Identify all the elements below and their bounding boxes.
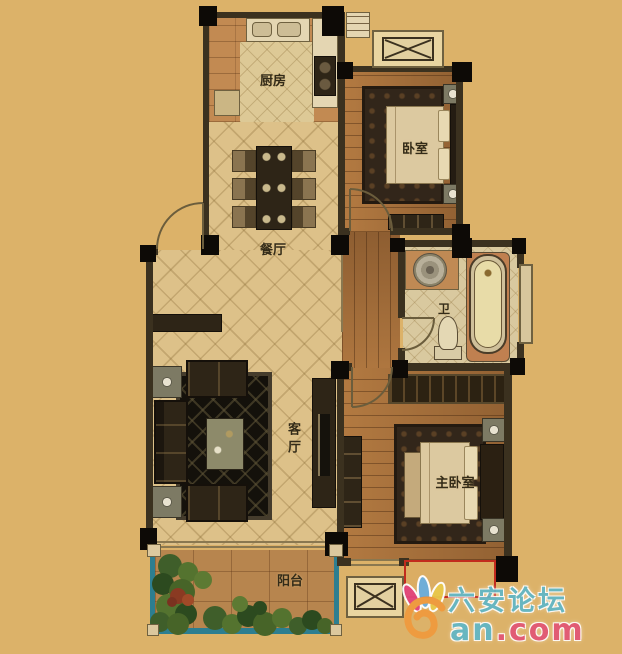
kitchen-bedroom-wall (338, 12, 345, 235)
dining-chair (292, 178, 316, 200)
kitchen-shelf-unit (346, 12, 370, 38)
master-nightstand-top (482, 418, 506, 442)
post-kitchen-top-left (199, 6, 217, 26)
armchair-top (186, 360, 248, 398)
post-kitchen-top-right (322, 6, 344, 36)
balcony-door-track-bottom (150, 546, 340, 548)
toilet-bowl (438, 316, 458, 350)
post-bathroom-top-mid (452, 238, 472, 258)
master-dresser (342, 436, 362, 528)
kitchen-cabinet (214, 90, 240, 116)
bathtub-basin (474, 260, 502, 348)
master-bottom-wall-left (337, 558, 351, 566)
post-bathroom-bottom-left (392, 360, 408, 378)
post-dining-left (201, 235, 219, 255)
master-window (354, 583, 396, 610)
console-table (150, 314, 222, 332)
master-window-sill (351, 559, 399, 566)
dining-table (256, 146, 292, 230)
hallway-floor (342, 232, 400, 368)
living-left-wall (146, 250, 153, 545)
master-wardrobe (388, 374, 506, 404)
kitchen-left-wall (203, 12, 209, 252)
coffee-table (206, 418, 244, 470)
living-label: 客厅 (284, 422, 303, 458)
watermark-domain-com: .com (496, 613, 585, 648)
master-right-wall (504, 371, 512, 563)
bedroom-window (382, 37, 434, 61)
sofa (154, 400, 188, 484)
watermark-domain: an.com (450, 616, 585, 646)
master-bedroom-label: 主卧室 (415, 472, 495, 491)
dining-chair (292, 206, 316, 228)
side-table-lamp-bottom (152, 486, 182, 518)
dining-chair (232, 178, 256, 200)
balcony-post (147, 544, 161, 557)
bedroom-label: 卧室 (390, 138, 440, 157)
watermark-site-name: 六安论坛 (448, 588, 568, 615)
bedroom-bottom-wall-left (338, 228, 350, 235)
master-pillow (464, 486, 478, 520)
floor-plan: 厨房 卧室 餐厅 卫 客厅 主卧室 阳台 六安论坛 an.com (0, 0, 622, 654)
post-bathroom-top-right (512, 238, 526, 254)
sink-bowl-left (252, 22, 272, 37)
post-dining-right (331, 235, 349, 255)
dining-chair (292, 150, 316, 172)
post-bedroom-top-left (337, 62, 353, 79)
balcony-floor (155, 550, 337, 632)
tv (318, 414, 330, 476)
dining-chair (232, 206, 256, 228)
post-bathroom-top-left (390, 238, 405, 252)
balcony-post (330, 624, 342, 636)
dining-chair (232, 150, 256, 172)
balcony-railing-left (150, 552, 155, 632)
living-hall-divider (341, 252, 343, 332)
master-nightstand-bottom (482, 518, 506, 542)
bedroom-right-wall (456, 66, 463, 234)
post-master-bottom-right (496, 556, 518, 582)
bathroom-label: 卫 (432, 300, 456, 317)
sink-bowl-right (277, 22, 301, 37)
armchair-bottom (186, 484, 248, 522)
side-table-lamp-top (152, 366, 182, 398)
dining-label: 餐厅 (248, 239, 298, 258)
balcony-post (147, 624, 159, 636)
post-bedroom-top-right (452, 62, 472, 82)
bathroom-bay-window (519, 264, 533, 344)
kitchen-label: 厨房 (248, 70, 298, 89)
balcony-label: 阳台 (262, 570, 318, 589)
balcony-railing-bottom (150, 628, 339, 634)
balcony-post (329, 544, 343, 557)
post-entry-left (140, 245, 156, 262)
bathroom-bottom-master-top-wall (392, 363, 524, 371)
bathroom-sink (413, 253, 447, 287)
balcony-door-track-top (150, 541, 340, 543)
post-bathroom-bottom-right (510, 358, 525, 375)
post-master-top-left (331, 361, 349, 379)
stove (314, 56, 336, 96)
watermark-domain-an: an (450, 613, 496, 648)
